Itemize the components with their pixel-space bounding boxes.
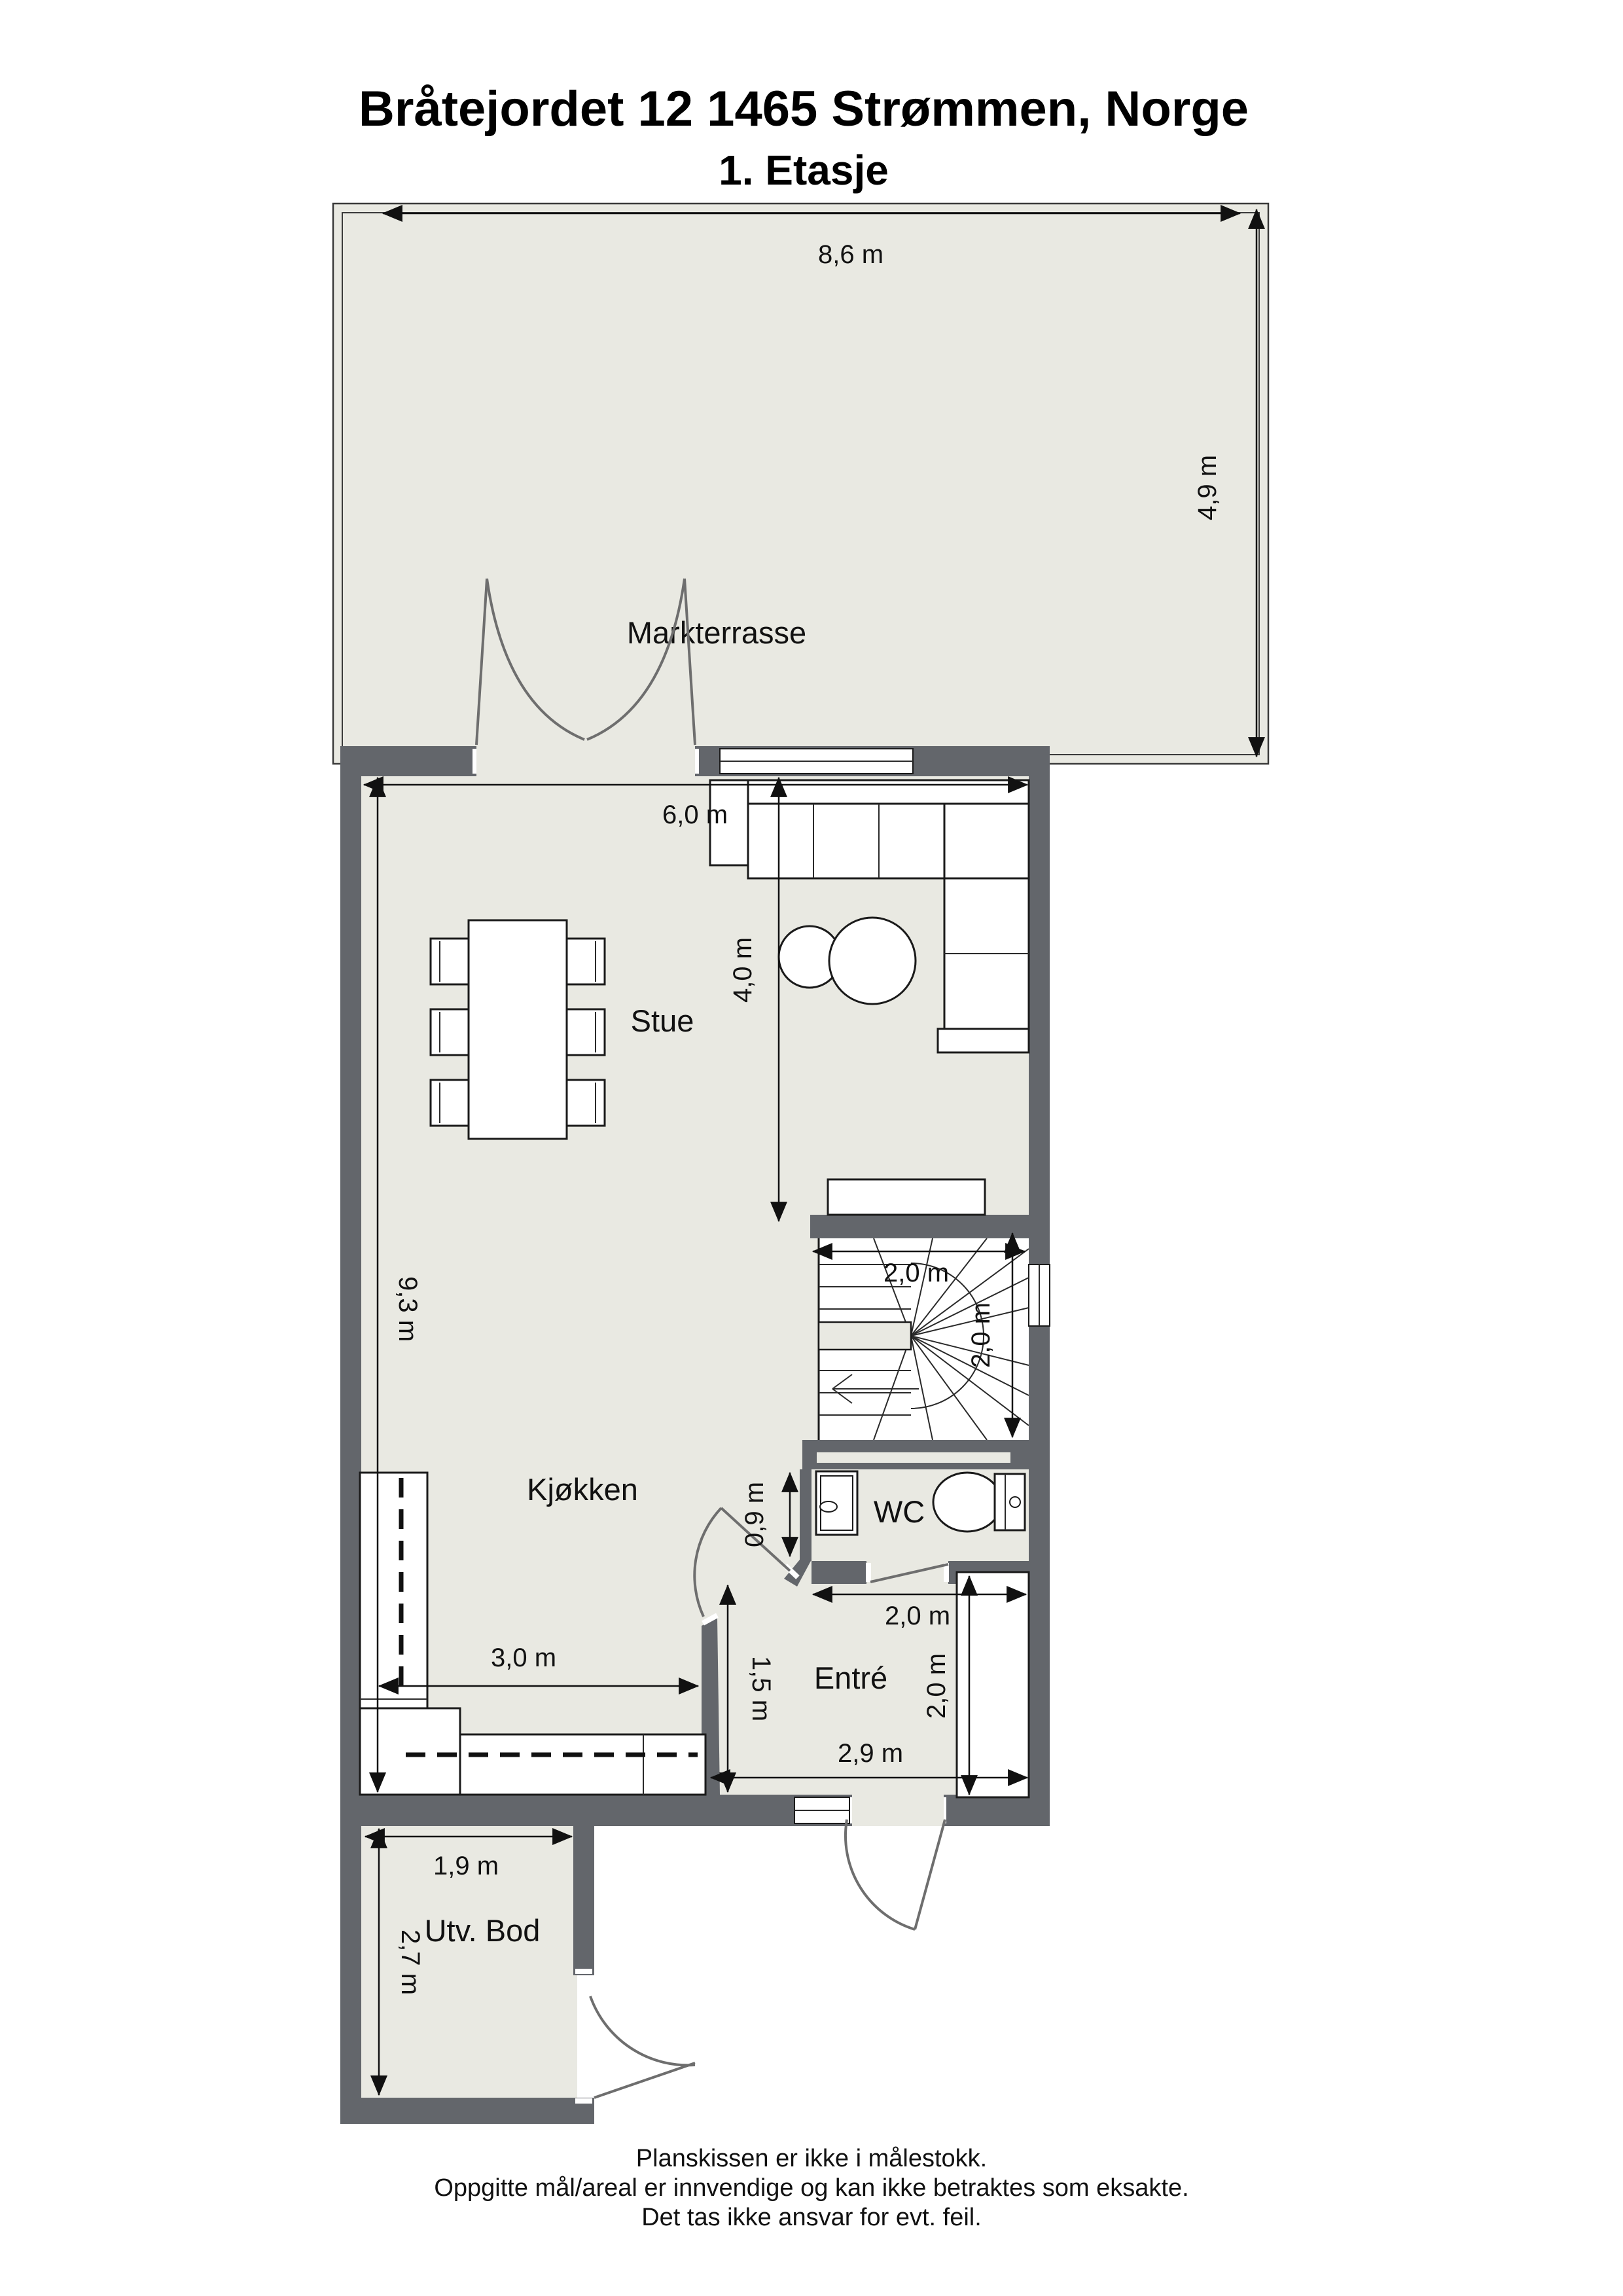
wall-wc-west xyxy=(800,1469,811,1561)
dim-terrace-width: 8,6 m xyxy=(818,240,883,269)
entry-wardrobe xyxy=(957,1572,1029,1797)
dining-set xyxy=(431,920,605,1139)
dim-kitchen-width: 3,0 m xyxy=(491,1643,556,1672)
storage-door-leaf xyxy=(594,2063,695,2098)
sofa-seats-top xyxy=(748,804,944,878)
dim-terrace-depth: 4,9 m xyxy=(1193,455,1222,520)
wall-stair-north xyxy=(810,1215,1029,1238)
chair xyxy=(567,939,605,984)
dim-bod-depth: 2,7 m xyxy=(396,1929,425,1995)
room-terrace: Markterrasse xyxy=(333,204,1268,764)
wall-storage-south xyxy=(340,2098,594,2124)
dim-wc-width: 2,0 m xyxy=(885,1602,950,1630)
dim-stair-width: 2,0 m xyxy=(883,1259,949,1287)
disclaimer: Planskissen er ikke i målestokk. Oppgitt… xyxy=(434,2145,1188,2231)
wall-west xyxy=(340,746,361,2124)
chair xyxy=(431,1009,469,1055)
dim-entry-width: 2,9 m xyxy=(838,1739,903,1768)
chair xyxy=(567,1009,605,1055)
wc-toilet-bowl xyxy=(933,1473,1001,1532)
dim-stair-depth: 2,0 m xyxy=(967,1302,995,1368)
storage-door-arc xyxy=(590,1996,695,2065)
room-label-stue: Stue xyxy=(631,1003,694,1038)
room-label-terrace: Markterrasse xyxy=(627,615,806,650)
wall-stair-south-niche xyxy=(817,1452,1010,1463)
dim-bod-width: 1,9 m xyxy=(433,1852,499,1880)
dim-stue-depth: 4,0 m xyxy=(728,937,757,1003)
wall-wc-south-left xyxy=(811,1561,866,1584)
sofa-armrest-bottom xyxy=(938,1029,1029,1052)
wc-sink-faucet xyxy=(820,1501,837,1512)
chair xyxy=(431,1080,469,1126)
disclaimer-line-1: Planskissen er ikke i målestokk. xyxy=(636,2145,987,2172)
counter-corner xyxy=(360,1708,460,1795)
terrace-door-opening xyxy=(476,745,695,778)
room-label-wc: WC xyxy=(874,1494,925,1529)
chair xyxy=(567,1080,605,1126)
room-label-kitchen: Kjøkken xyxy=(527,1472,638,1507)
wall-storage-east xyxy=(573,1826,594,1975)
room-label-entry: Entré xyxy=(814,1660,887,1695)
chair xyxy=(431,939,469,984)
stair-landing xyxy=(819,1322,911,1350)
room-label-storage: Utv. Bod xyxy=(425,1913,541,1948)
side-table-large xyxy=(829,918,916,1004)
dim-wc-depth: 0,9 m xyxy=(740,1482,769,1547)
counter-west xyxy=(360,1473,427,1708)
sofa-corner-seat xyxy=(944,804,1029,878)
sideboard xyxy=(828,1179,985,1215)
disclaimer-line-2: Oppgitte mål/areal er innvendige og kan … xyxy=(434,2174,1188,2202)
dim-passage-depth: 1,5 m xyxy=(747,1656,776,1721)
page-subtitle: 1. Etasje xyxy=(719,147,889,194)
dining-table xyxy=(469,920,567,1139)
terrace-outer-border xyxy=(333,204,1268,764)
dim-entry-depth: 2,0 m xyxy=(922,1653,951,1719)
disclaimer-line-3: Det tas ikke ansvar for evt. feil. xyxy=(641,2204,982,2231)
dim-interior-depth: 9,3 m xyxy=(393,1276,422,1342)
floor-plan: Bråtejordet 12 1465 Strømmen, Norge 1. E… xyxy=(0,0,1623,2296)
page-title: Bråtejordet 12 1465 Strømmen, Norge xyxy=(359,81,1249,137)
counter-south xyxy=(460,1734,705,1795)
entry-door-opening xyxy=(852,1795,944,1826)
entry-door-leaf xyxy=(915,1820,945,1929)
entry-door-arc xyxy=(846,1820,915,1929)
dim-stue-width: 6,0 m xyxy=(662,800,728,829)
sofa-back-top xyxy=(748,780,1029,804)
wc-flush-button xyxy=(1010,1497,1020,1507)
